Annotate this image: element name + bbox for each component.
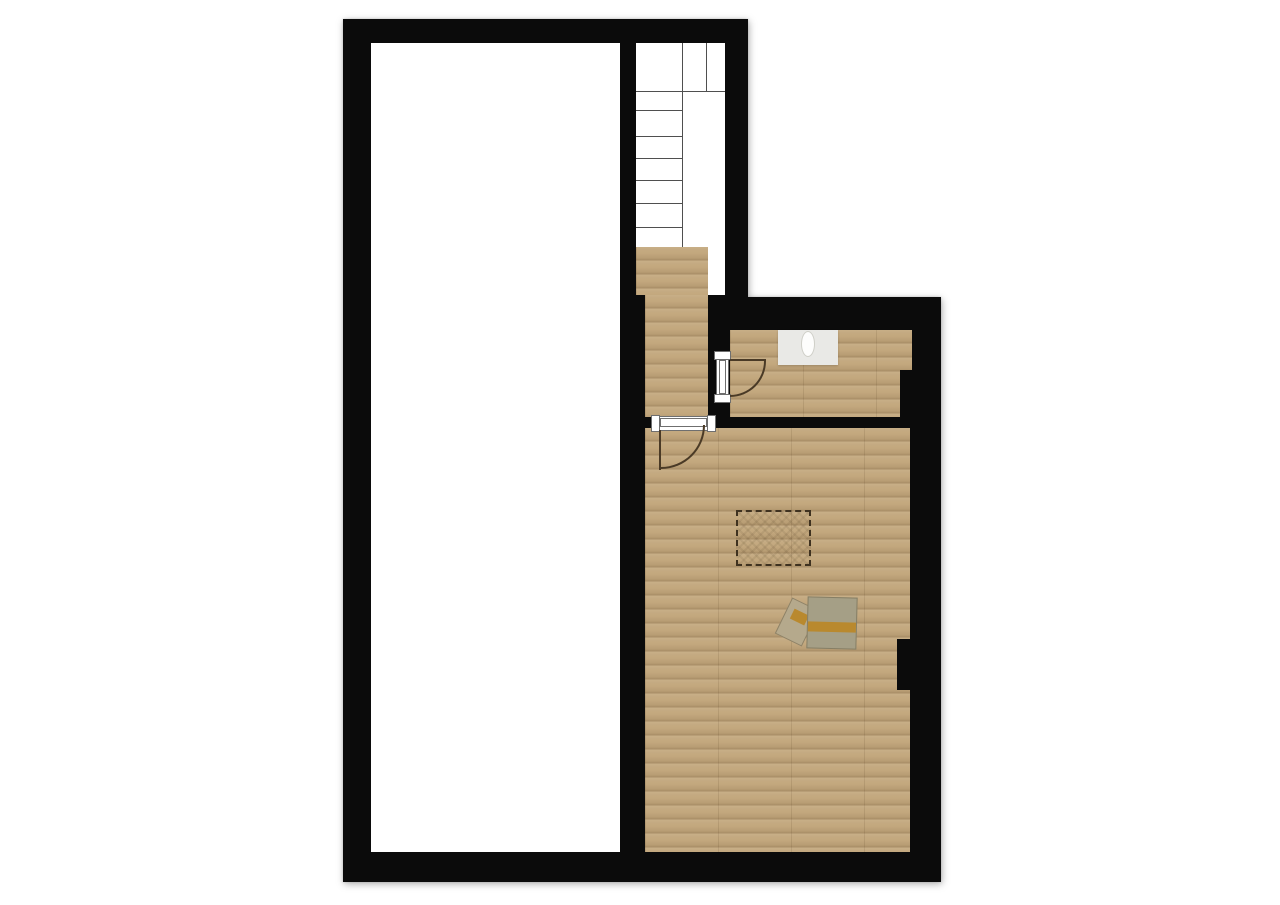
door-swing-arc — [661, 425, 705, 469]
hallway-floor-upper — [636, 247, 708, 295]
desk-stripe — [808, 621, 856, 632]
door-jamb-cap — [714, 394, 731, 403]
wall-pilaster-main-room — [897, 639, 910, 690]
door-main-room — [651, 415, 716, 471]
door-swing-arc — [730, 361, 766, 397]
stair-center-line — [682, 43, 683, 247]
stair-tread-line — [636, 180, 682, 181]
stair-tread-line — [636, 227, 682, 228]
stair-winder-line — [706, 43, 707, 91]
wall-notch-top-right-room — [900, 370, 912, 417]
door-jamb-cap — [707, 415, 716, 432]
hallway-floor-lower — [645, 295, 708, 417]
stair-tread-line — [636, 203, 682, 204]
stair-tread-line — [636, 136, 682, 137]
left-room-floor — [371, 43, 620, 852]
door-jamb-cap — [714, 351, 731, 360]
ceiling-opening-dashed-outline — [736, 510, 811, 566]
sink — [778, 330, 838, 365]
stair-tread-line — [636, 110, 682, 111]
desk-group — [780, 595, 858, 653]
desk — [806, 596, 857, 649]
door-top-right-room — [714, 351, 774, 403]
sink-basin — [801, 331, 815, 357]
stair-tread-line — [636, 158, 682, 159]
main-room-floor — [645, 428, 910, 852]
floor-plan — [0, 0, 1280, 905]
door-leaf-closed — [719, 360, 726, 394]
stair-landing-line — [636, 91, 725, 92]
